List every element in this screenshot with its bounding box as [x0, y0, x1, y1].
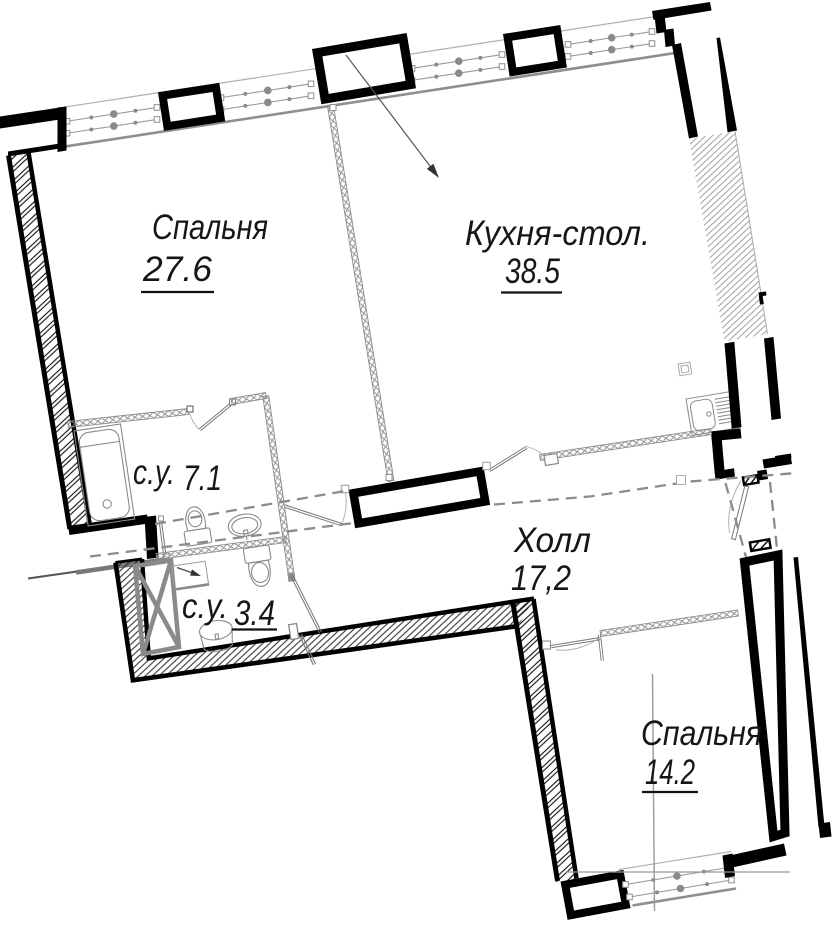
svg-text:3.4: 3.4	[234, 594, 275, 633]
svg-text:27.6: 27.6	[142, 250, 213, 289]
svg-text:Спальня: Спальня	[152, 208, 268, 247]
svg-text:17,2: 17,2	[511, 559, 571, 598]
svg-text:с.у.: с.у.	[182, 587, 228, 626]
svg-text:38.5: 38.5	[505, 252, 560, 291]
svg-text:Спальня: Спальня	[641, 714, 762, 753]
svg-text:Кухня-стол.: Кухня-стол.	[465, 214, 650, 253]
svg-text:14.2: 14.2	[645, 753, 695, 792]
svg-text:с.у.: с.у.	[133, 453, 175, 492]
svg-text:7.1: 7.1	[183, 459, 222, 498]
svg-text:Холл: Холл	[513, 521, 591, 560]
